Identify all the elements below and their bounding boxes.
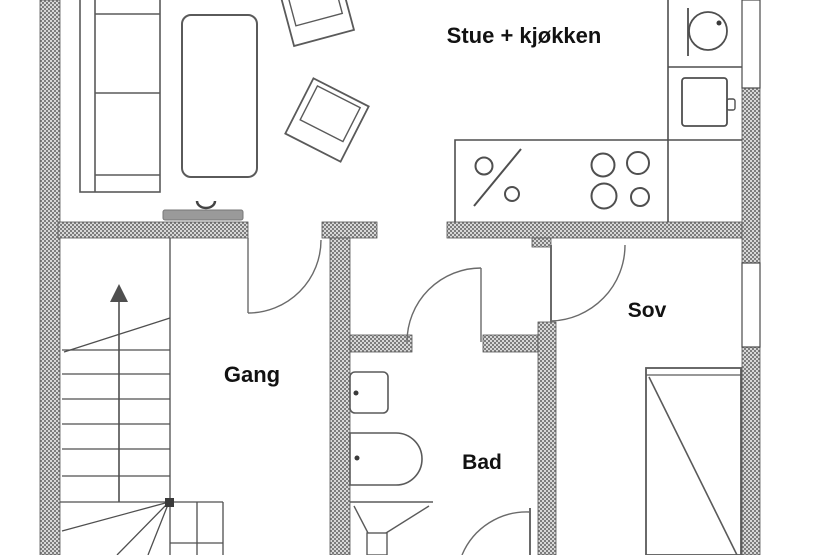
bed-diagonal bbox=[649, 377, 737, 555]
wall-bath-north-left bbox=[350, 335, 412, 352]
bench-hook-mark bbox=[197, 201, 215, 208]
room-label-living-kitchen: Stue + kjøkken bbox=[447, 23, 602, 48]
toilet-symbol bbox=[350, 502, 433, 555]
doors bbox=[248, 238, 625, 555]
wall-right-upper bbox=[742, 88, 760, 263]
room-label-hallway: Gang bbox=[224, 362, 280, 387]
basin-tap bbox=[354, 391, 359, 396]
winder-tread bbox=[62, 502, 169, 531]
door-swing-symbol-bath-south bbox=[462, 508, 530, 555]
window-symbol-bedroom bbox=[742, 263, 760, 347]
winder-tread bbox=[117, 502, 169, 555]
door-swing-symbol-bedroom bbox=[551, 245, 625, 322]
winder-tread bbox=[148, 502, 169, 555]
wall-mid-center bbox=[322, 222, 377, 238]
wall-left bbox=[40, 0, 60, 555]
cooktop-burners-symbol bbox=[592, 152, 650, 209]
walls bbox=[40, 0, 760, 555]
room-label-bathroom: Bad bbox=[462, 451, 502, 474]
stair-break-line bbox=[64, 318, 170, 352]
living-room-furniture bbox=[80, 0, 369, 220]
chair-symbol-2 bbox=[285, 78, 368, 161]
bed-symbol bbox=[646, 368, 741, 555]
washbasin-symbol bbox=[350, 372, 388, 413]
wall-bath-north-right bbox=[483, 335, 538, 352]
wall-mid-west bbox=[58, 222, 248, 238]
bathtub-symbol bbox=[350, 433, 422, 485]
tub-drain bbox=[355, 456, 360, 461]
wall-hall-bath bbox=[330, 238, 350, 555]
chair-symbol-1 bbox=[278, 0, 354, 46]
bathroom-fixtures bbox=[350, 372, 433, 555]
kitchen-counter bbox=[455, 140, 742, 222]
sofa-symbol bbox=[80, 0, 160, 192]
winder-hub bbox=[165, 498, 174, 507]
wall-bench-symbol bbox=[163, 201, 243, 220]
floor-plan: Stue + kjøkken Gang Bad Sov bbox=[0, 0, 832, 555]
sink-drain bbox=[717, 21, 722, 26]
door-swing-symbol-hall bbox=[248, 238, 321, 313]
oven-symbol bbox=[682, 78, 735, 126]
window-symbol-kitchen bbox=[742, 0, 760, 88]
table-symbol bbox=[182, 15, 257, 177]
counter-sink-symbol bbox=[474, 149, 521, 206]
wall-right-lower bbox=[742, 347, 760, 555]
room-labels: Stue + kjøkken Gang Bad Sov bbox=[224, 23, 667, 474]
room-label-bedroom: Sov bbox=[628, 299, 667, 322]
stair-up-arrow bbox=[110, 284, 128, 302]
door-swing-symbol-bathroom bbox=[407, 268, 481, 342]
wall-mid-east bbox=[447, 222, 742, 238]
stairs-with-up-arrow-symbol bbox=[60, 238, 223, 555]
oven-knob bbox=[727, 99, 735, 110]
wall-bath-bedroom bbox=[538, 322, 556, 555]
floor-plan-canvas: Stue + kjøkken Gang Bad Sov bbox=[0, 0, 832, 555]
wall-bedroom-door-jamb bbox=[532, 238, 551, 247]
round-sink-symbol bbox=[688, 8, 727, 56]
